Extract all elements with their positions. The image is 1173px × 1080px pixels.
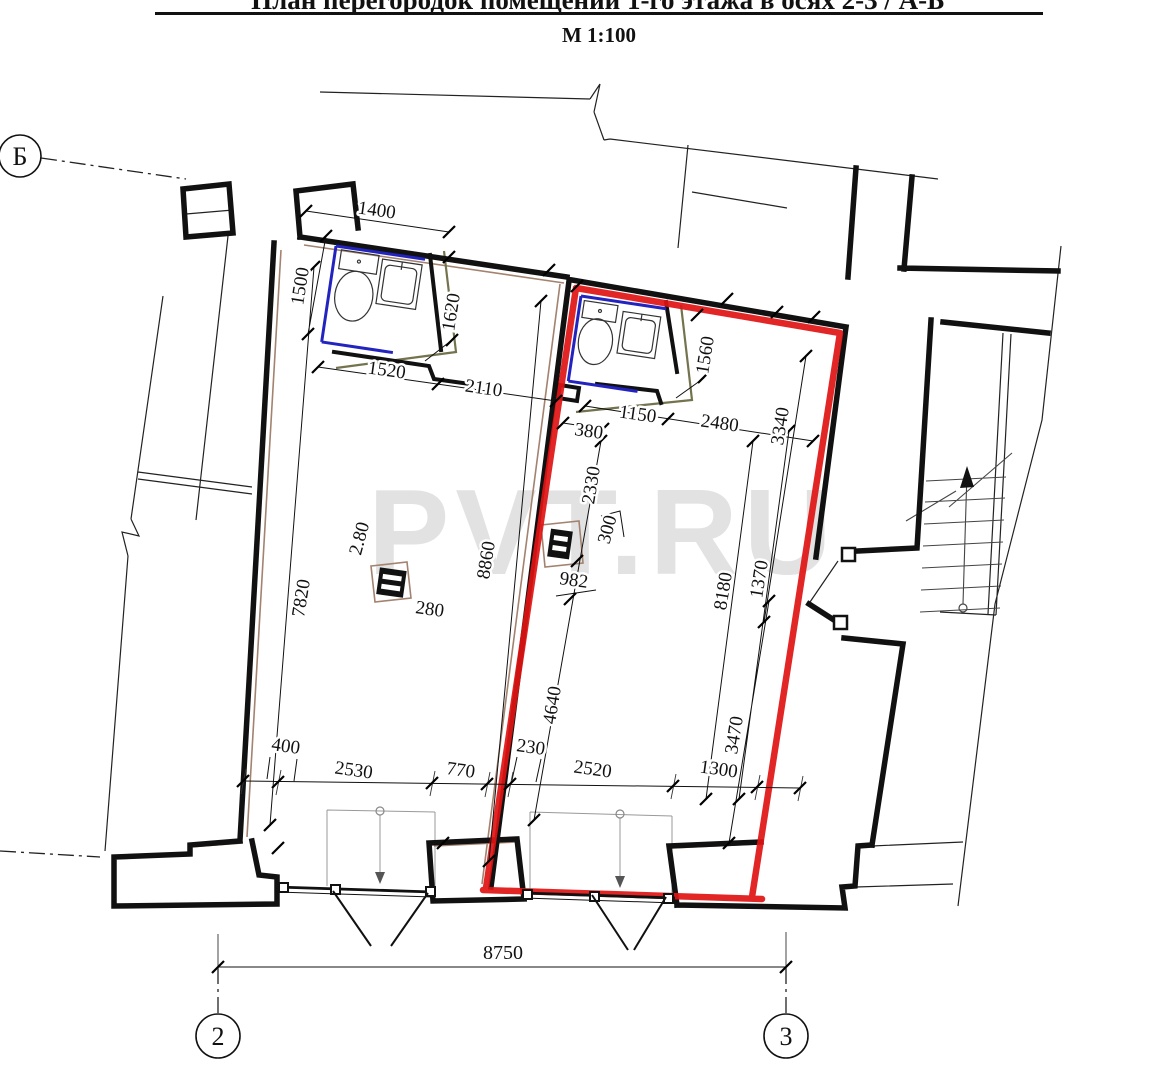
dim-380: 380 bbox=[573, 419, 604, 444]
down-arrow-icon bbox=[615, 876, 625, 888]
dim-1520: 1520 bbox=[366, 358, 407, 384]
wall-pilaster bbox=[547, 529, 573, 560]
drawing-title: План перегородок помещений 1-го этажа в … bbox=[155, 0, 1043, 47]
floor-plan: PVT.RU План перегородок помещений 1-го э… bbox=[0, 0, 1173, 1080]
bathroom-1-walls bbox=[322, 246, 425, 355]
dim-1560: 1560 bbox=[692, 335, 719, 376]
dim-1150: 1150 bbox=[618, 402, 658, 428]
dim-2480: 2480 bbox=[699, 411, 740, 437]
dim-982: 982 bbox=[558, 568, 589, 593]
axis-label-3: 3 bbox=[780, 1022, 793, 1051]
dim-770: 770 bbox=[445, 758, 476, 783]
sink-icon bbox=[617, 311, 661, 358]
axis-label-b: Б bbox=[13, 142, 28, 171]
toilet-icon bbox=[331, 250, 379, 324]
down-arrow-icon bbox=[375, 872, 385, 884]
axis-label-2: 2 bbox=[212, 1022, 225, 1051]
stair-direction-arrow bbox=[960, 466, 974, 488]
toilet-icon bbox=[575, 301, 618, 367]
dim-230: 230 bbox=[515, 735, 546, 760]
dim-7820: 7820 bbox=[288, 578, 315, 619]
dim-3340: 3340 bbox=[767, 406, 794, 447]
bathroom-2 bbox=[568, 296, 666, 394]
dim-2530: 2530 bbox=[333, 758, 374, 784]
bathroom-1 bbox=[322, 246, 425, 355]
dim-2520: 2520 bbox=[572, 757, 613, 783]
column-280 bbox=[376, 567, 406, 597]
dim-8180: 8180 bbox=[710, 571, 737, 612]
title-underline bbox=[155, 12, 1043, 15]
dim-3470: 3470 bbox=[721, 715, 748, 756]
dim-400: 400 bbox=[270, 734, 301, 759]
dim-1500: 1500 bbox=[287, 266, 314, 307]
sink-icon bbox=[376, 259, 422, 309]
dim-280-h: 280 bbox=[414, 597, 445, 622]
dim-2110: 2110 bbox=[464, 376, 504, 402]
scale-label: М 1:100 bbox=[562, 23, 636, 47]
dim-8750: 8750 bbox=[483, 942, 523, 964]
dim-1620: 1620 bbox=[438, 292, 465, 333]
dim-1300: 1300 bbox=[698, 757, 739, 783]
extension-lines bbox=[218, 769, 803, 967]
stair-start-marker bbox=[959, 604, 967, 612]
dim-4640: 4640 bbox=[539, 685, 566, 726]
